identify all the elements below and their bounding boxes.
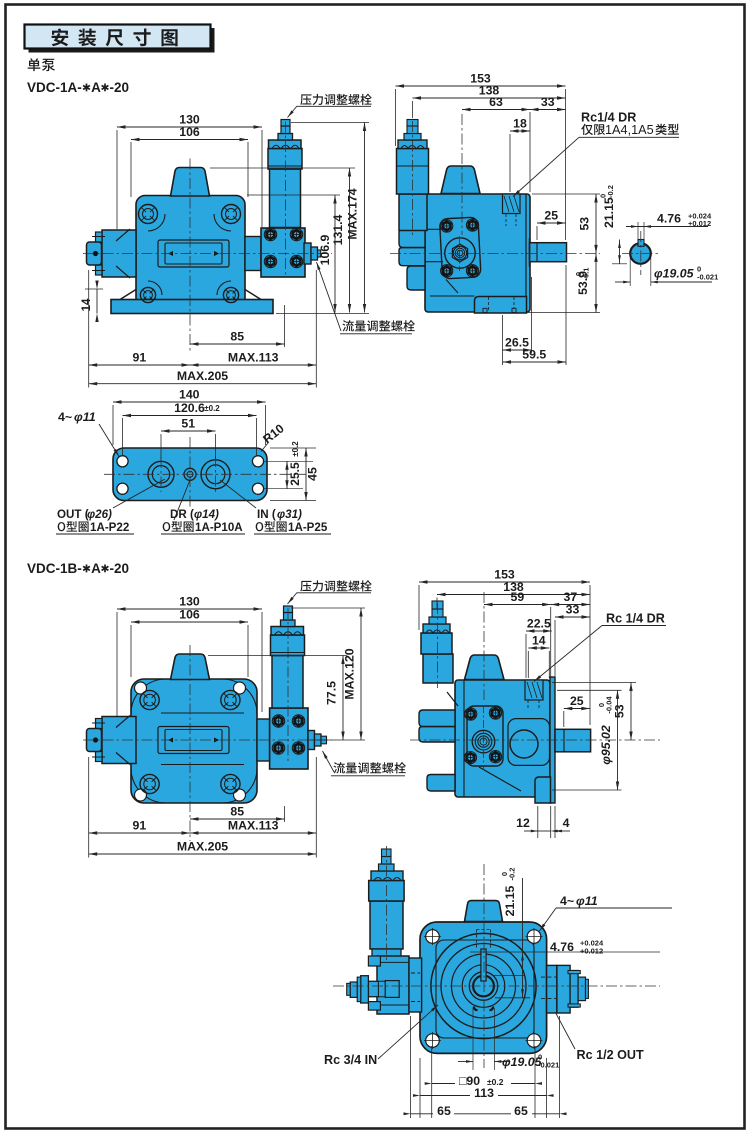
- svg-text:A: A: [91, 80, 101, 95]
- svg-text:4.76: 4.76: [550, 940, 574, 954]
- svg-text:21.15: 21.15: [503, 885, 517, 916]
- svg-text:85: 85: [230, 805, 244, 819]
- svg-text:53: 53: [613, 704, 627, 718]
- svg-text:OUT (: OUT (: [57, 508, 89, 521]
- svg-text:φ11: φ11: [74, 410, 96, 424]
- svg-text:±0.2: ±0.2: [204, 404, 220, 413]
- svg-text:51: 51: [181, 417, 195, 431]
- svg-text:-0.2: -0.2: [508, 868, 517, 881]
- svg-text:IN (: IN (: [257, 508, 276, 521]
- svg-text:91: 91: [133, 819, 147, 833]
- svg-text:14: 14: [532, 634, 546, 648]
- svg-text:Rc 3/4 IN: Rc 3/4 IN: [324, 1053, 377, 1067]
- svg-text:φ19.05: φ19.05: [654, 267, 694, 281]
- svg-text:4~: 4~: [58, 410, 72, 424]
- svg-text:+0.012: +0.012: [688, 219, 711, 228]
- svg-text:MAX.120: MAX.120: [343, 648, 357, 699]
- svg-text:DR (: DR (: [170, 508, 194, 521]
- svg-text:4: 4: [563, 816, 570, 830]
- svg-text:4.76: 4.76: [657, 212, 681, 226]
- svg-text:113: 113: [474, 1086, 494, 1100]
- svg-text:+0.012: +0.012: [580, 947, 603, 956]
- svg-text:-0.1: -0.1: [582, 268, 591, 281]
- svg-text:25.5: 25.5: [288, 462, 302, 486]
- svg-text:±0.2: ±0.2: [291, 441, 300, 457]
- svg-text:Rc 1/2 OUT: Rc 1/2 OUT: [577, 1048, 644, 1062]
- svg-text:MAX.113: MAX.113: [228, 351, 279, 365]
- svg-text:1A-P25: 1A-P25: [288, 521, 328, 534]
- svg-text:140: 140: [179, 388, 200, 402]
- svg-text:91: 91: [133, 351, 147, 365]
- svg-text:131.4: 131.4: [331, 214, 345, 245]
- svg-text:21.15: 21.15: [602, 197, 616, 228]
- svg-text:MAX.113: MAX.113: [228, 819, 279, 833]
- svg-text:25: 25: [570, 694, 584, 708]
- svg-text:120.6: 120.6: [174, 401, 205, 415]
- svg-text:53: 53: [578, 217, 592, 231]
- svg-text:45: 45: [306, 467, 320, 481]
- svg-text:VDC-1A-: VDC-1A-: [27, 80, 82, 95]
- svg-text:65: 65: [437, 1104, 451, 1118]
- svg-text:33: 33: [566, 603, 580, 617]
- svg-text:106: 106: [179, 125, 200, 139]
- svg-text:130: 130: [179, 595, 200, 609]
- svg-text:φ31): φ31): [277, 508, 302, 521]
- svg-text:12: 12: [516, 816, 530, 830]
- svg-text:MAX.205: MAX.205: [177, 840, 228, 854]
- svg-text:25: 25: [544, 209, 558, 223]
- svg-text:-0.04: -0.04: [605, 696, 614, 714]
- svg-text:33: 33: [541, 95, 555, 109]
- svg-text:59.5: 59.5: [522, 348, 546, 362]
- svg-text:Rc 1/4 DR: Rc 1/4 DR: [606, 612, 665, 626]
- svg-text:63: 63: [489, 95, 503, 109]
- svg-text:φ11: φ11: [576, 894, 598, 908]
- svg-text:85: 85: [230, 330, 244, 344]
- svg-text:1A-P10A: 1A-P10A: [195, 521, 243, 534]
- svg-text:A: A: [91, 561, 101, 576]
- svg-text:MAX.174: MAX.174: [346, 188, 360, 239]
- svg-text:18: 18: [513, 117, 527, 131]
- svg-text:106.9: 106.9: [318, 234, 332, 265]
- svg-text:59: 59: [511, 590, 525, 604]
- svg-text:φ26): φ26): [87, 508, 112, 521]
- svg-text:77.5: 77.5: [325, 681, 339, 705]
- svg-text:VDC-1B-: VDC-1B-: [27, 561, 82, 576]
- svg-text:-0.2: -0.2: [606, 185, 615, 198]
- svg-text:-20: -20: [110, 80, 130, 95]
- svg-text:1A-P22: 1A-P22: [90, 521, 129, 534]
- svg-text:-0.021: -0.021: [697, 273, 718, 282]
- svg-text:4~: 4~: [560, 894, 574, 908]
- svg-text:-20: -20: [110, 561, 130, 576]
- svg-text:65: 65: [514, 1104, 528, 1118]
- svg-text:-0.021: -0.021: [538, 1061, 559, 1070]
- svg-text:22.5: 22.5: [527, 617, 551, 631]
- svg-text:1A4,1A5: 1A4,1A5: [605, 123, 654, 137]
- svg-text:MAX.205: MAX.205: [177, 369, 228, 383]
- svg-text:φ14): φ14): [194, 508, 219, 521]
- svg-text:106: 106: [179, 608, 200, 622]
- svg-text:14: 14: [81, 298, 93, 311]
- svg-text:φ19.05: φ19.05: [502, 1055, 542, 1069]
- svg-text:φ95.02: φ95.02: [599, 725, 613, 765]
